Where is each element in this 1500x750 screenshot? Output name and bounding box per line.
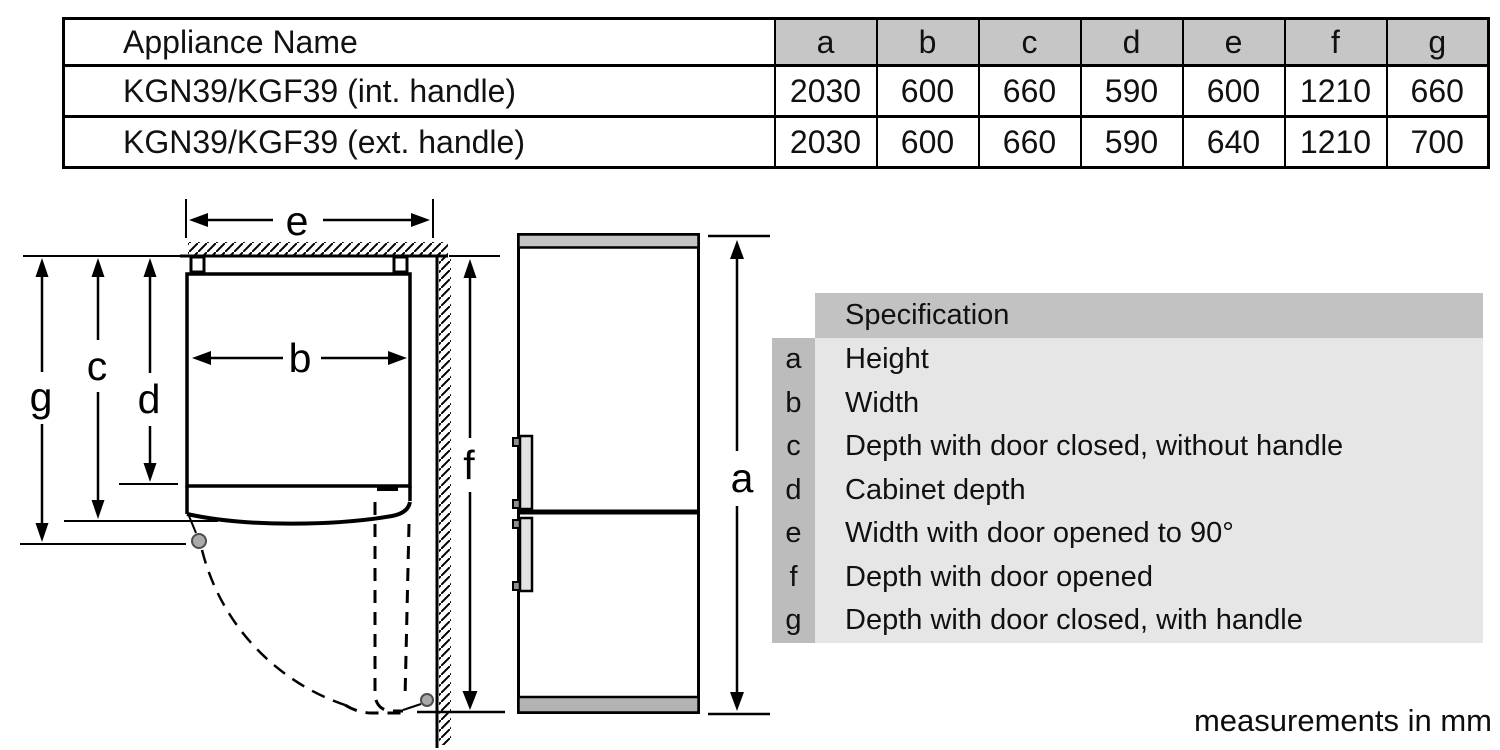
hinge-spacer-left: [191, 257, 204, 272]
dim-value-cell: 1210: [1285, 66, 1387, 117]
handle-dot-open: [421, 694, 433, 706]
dim-label-c: c: [87, 343, 108, 389]
hinge-spacer-right: [394, 257, 407, 272]
dim-label-d: d: [138, 376, 161, 422]
dim-value-cell: 600: [877, 117, 979, 168]
door-closed: [187, 486, 410, 524]
dim-value-cell: 590: [1081, 117, 1183, 168]
col-header-d: d: [1081, 19, 1183, 66]
specification-table: Specification a Height b Width c Depth w…: [772, 293, 1483, 643]
table-row-int-handle: KGN39/KGF39 (int. handle) 2030 600 660 5…: [64, 66, 1489, 117]
spec-label-a: Height: [815, 338, 1483, 382]
fridge-top-strip: [519, 235, 699, 248]
appliance-name: KGN39/KGF39 (int. handle): [64, 66, 775, 117]
dim-value-cell: 660: [979, 66, 1081, 117]
col-header-c: c: [979, 19, 1081, 66]
dim-value-cell: 2030: [775, 117, 877, 168]
dimension-table-header-row: Appliance Name a b c d e f g: [64, 19, 1489, 66]
dim-label-a: a: [731, 455, 754, 501]
dim-value-cell: 1210: [1285, 117, 1387, 168]
handle-dot-closed: [192, 534, 206, 548]
dim-value-cell: 660: [979, 117, 1081, 168]
dim-value-cell: 600: [1183, 66, 1285, 117]
spec-label-c: Depth with door closed, without handle: [815, 425, 1483, 469]
dim-value-cell: 600: [877, 66, 979, 117]
spec-label-d: Cabinet depth: [815, 469, 1483, 513]
door-swing-arc: [202, 550, 345, 705]
wall-right-hatch: [439, 257, 451, 745]
appliance-name: KGN39/KGF39 (ext. handle): [64, 117, 775, 168]
table-row-ext-handle: KGN39/KGF39 (ext. handle) 2030 600 660 5…: [64, 117, 1489, 168]
measurements-unit-note: measurements in mm: [1194, 703, 1492, 739]
dim-a: a: [708, 236, 770, 714]
fridge-body: [519, 235, 699, 713]
dim-e: e: [186, 198, 433, 244]
door-handle-open: [403, 694, 433, 710]
col-header-e: e: [1183, 19, 1285, 66]
fridge-handle-upper: [513, 436, 532, 509]
spec-label-g: Depth with door closed, with handle: [815, 599, 1483, 643]
dim-value-cell: 660: [1387, 66, 1489, 117]
dim-label-f: f: [463, 442, 475, 488]
dim-label-e: e: [286, 198, 309, 244]
fridge-plinth: [519, 697, 699, 713]
dim-f: f: [417, 256, 505, 712]
front-view-diagram: a: [513, 235, 770, 715]
fridge-handle-lower: [513, 518, 532, 591]
col-header-a: a: [775, 19, 877, 66]
spec-label-e: Width with door opened to 90°: [815, 512, 1483, 556]
dim-d: d: [119, 258, 178, 484]
col-header-g: g: [1387, 19, 1489, 66]
door-open-dashed: [345, 502, 409, 713]
dim-value-cell: 700: [1387, 117, 1489, 168]
dim-value-cell: 2030: [775, 66, 877, 117]
spec-label-b: Width: [815, 382, 1483, 426]
spec-header: Specification: [815, 293, 1483, 338]
dim-value-cell: 640: [1183, 117, 1285, 168]
col-header-b: b: [877, 19, 979, 66]
dim-label-b: b: [289, 335, 312, 381]
installation-diagram: e b g c: [0, 185, 800, 750]
col-header-f: f: [1285, 19, 1387, 66]
wall-top-hatch: [188, 242, 448, 255]
col-header-appliance-name: Appliance Name: [64, 19, 775, 66]
dimension-table: Appliance Name a b c d e f g KGN39/KGF39…: [62, 17, 1490, 169]
dim-label-g: g: [30, 374, 53, 420]
spec-label-f: Depth with door opened: [815, 556, 1483, 600]
dim-value-cell: 590: [1081, 66, 1183, 117]
top-view-diagram: e b g c: [20, 198, 505, 748]
